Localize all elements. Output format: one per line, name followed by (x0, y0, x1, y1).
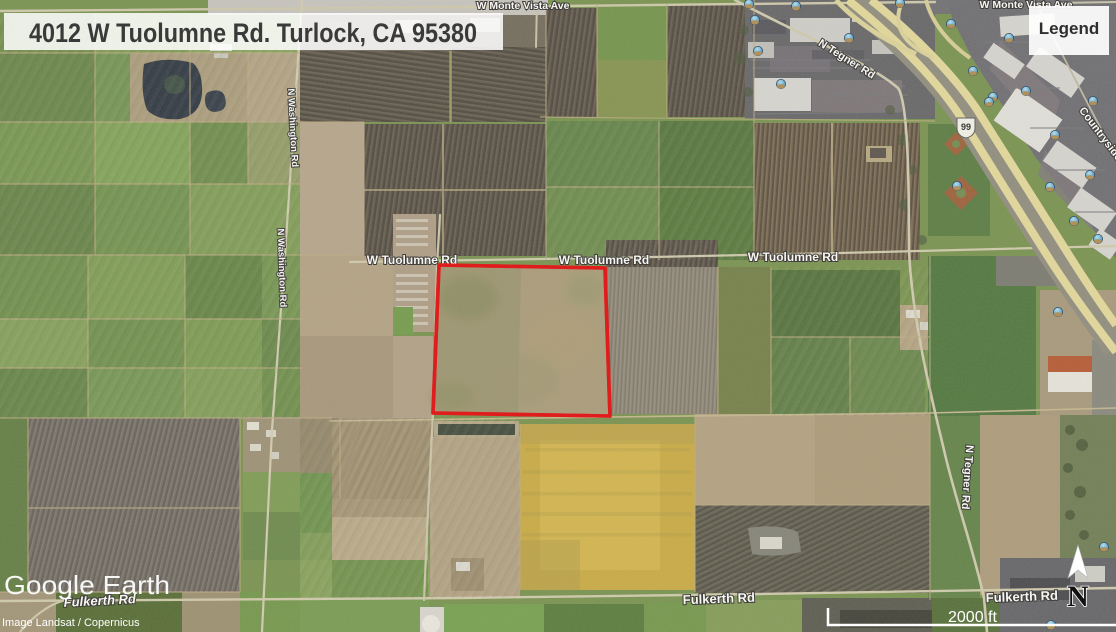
svg-text:Legend: Legend (1039, 19, 1099, 38)
svg-text:N: N (1067, 580, 1089, 613)
svg-text:4012 W Tuolumne Rd. Turlock, C: 4012 W Tuolumne Rd. Turlock, CA 95380 (29, 18, 477, 48)
svg-text:Google Earth: Google Earth (4, 570, 170, 600)
svg-text:Image Landsat / Copernicus: Image Landsat / Copernicus (2, 617, 140, 629)
svg-text:2000 ft: 2000 ft (948, 609, 997, 626)
